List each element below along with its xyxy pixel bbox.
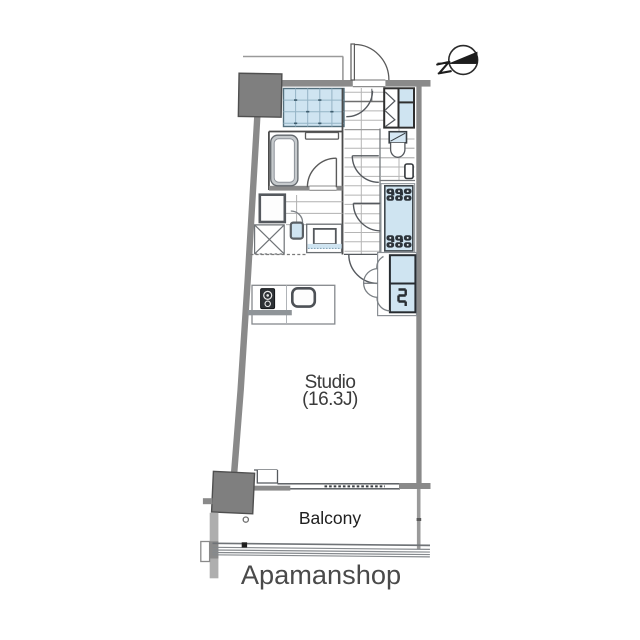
svg-text:Balcony: Balcony bbox=[299, 508, 362, 528]
svg-text:(16.3J): (16.3J) bbox=[302, 389, 358, 410]
svg-text:Apamanshop: Apamanshop bbox=[241, 559, 401, 590]
